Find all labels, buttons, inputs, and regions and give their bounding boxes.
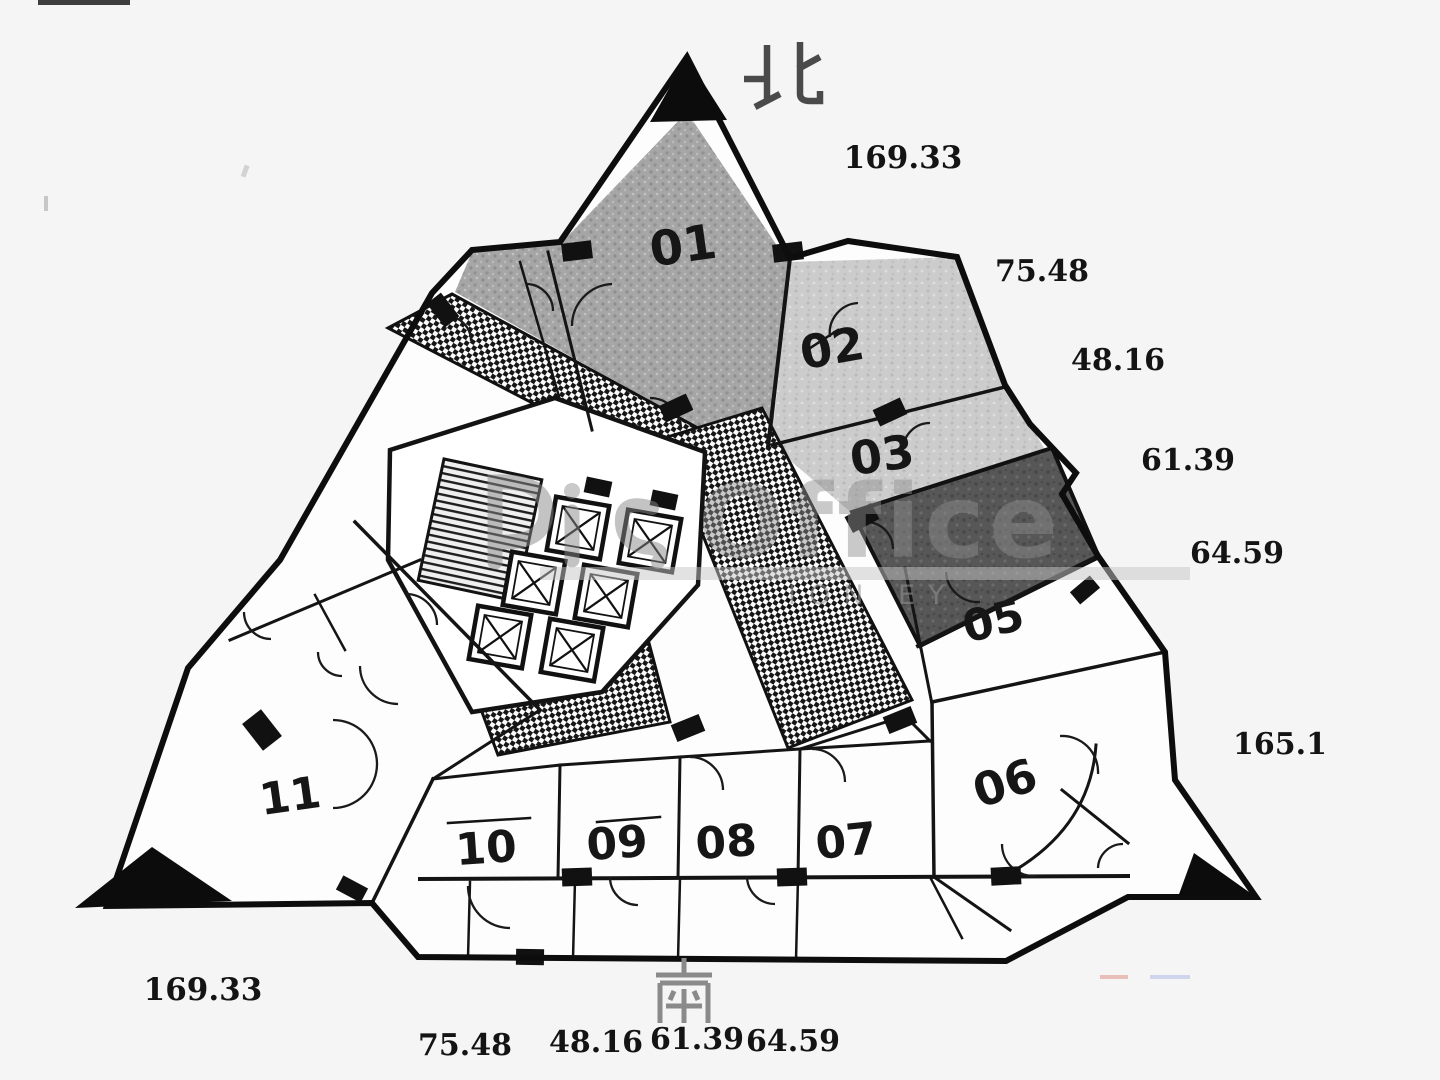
area-label-bottom-3: 61.39 [650,1022,744,1057]
room-label-11: 11 [256,767,324,826]
compass-south-label: 南 [659,964,709,1022]
building [75,57,1256,965]
area-label-bottom-4: 64.59 [746,1024,840,1059]
scan-color-artifact [1150,975,1190,979]
room-label-07: 07 [813,813,879,870]
elevator-icon [541,619,604,682]
area-label-right-6: 165.1 [1233,727,1327,762]
area-label-bottom-1: 75.48 [418,1028,512,1063]
floor-plan-page: 01 02 03 05 06 07 08 09 10 11 169.33 75.… [0,0,1440,1080]
area-label-right-1: 169.33 [844,140,963,176]
watermark-bar [540,567,1190,580]
watermark-text: Office [698,463,1062,582]
scan-smudge [44,196,48,211]
area-label-bottom-left: 169.33 [144,972,263,1008]
room-label-02: 02 [796,316,868,380]
watermark-subtext: ION EY [788,580,958,611]
scan-smudge [241,165,250,178]
scan-color-artifact [1100,975,1128,979]
area-label-bottom-2: 48.16 [549,1025,643,1060]
room-label-09: 09 [585,816,650,871]
area-label-right-4: 61.39 [1141,443,1235,478]
floor-plan-scan: 01 02 03 05 06 07 08 09 10 11 169.33 75.… [0,0,1440,1080]
area-label-right-2: 75.48 [995,254,1089,289]
elevator-icon [503,552,566,615]
room-label-08: 08 [694,815,759,870]
compass-north-label: 北 [751,49,801,107]
elevator-icon [469,606,532,669]
area-label-right-5: 64.59 [1190,536,1284,571]
area-label-right-3: 48.16 [1071,343,1165,378]
room-label-10: 10 [454,821,519,876]
scan-edge-mark [38,0,130,5]
room-label-01: 01 [646,214,720,279]
